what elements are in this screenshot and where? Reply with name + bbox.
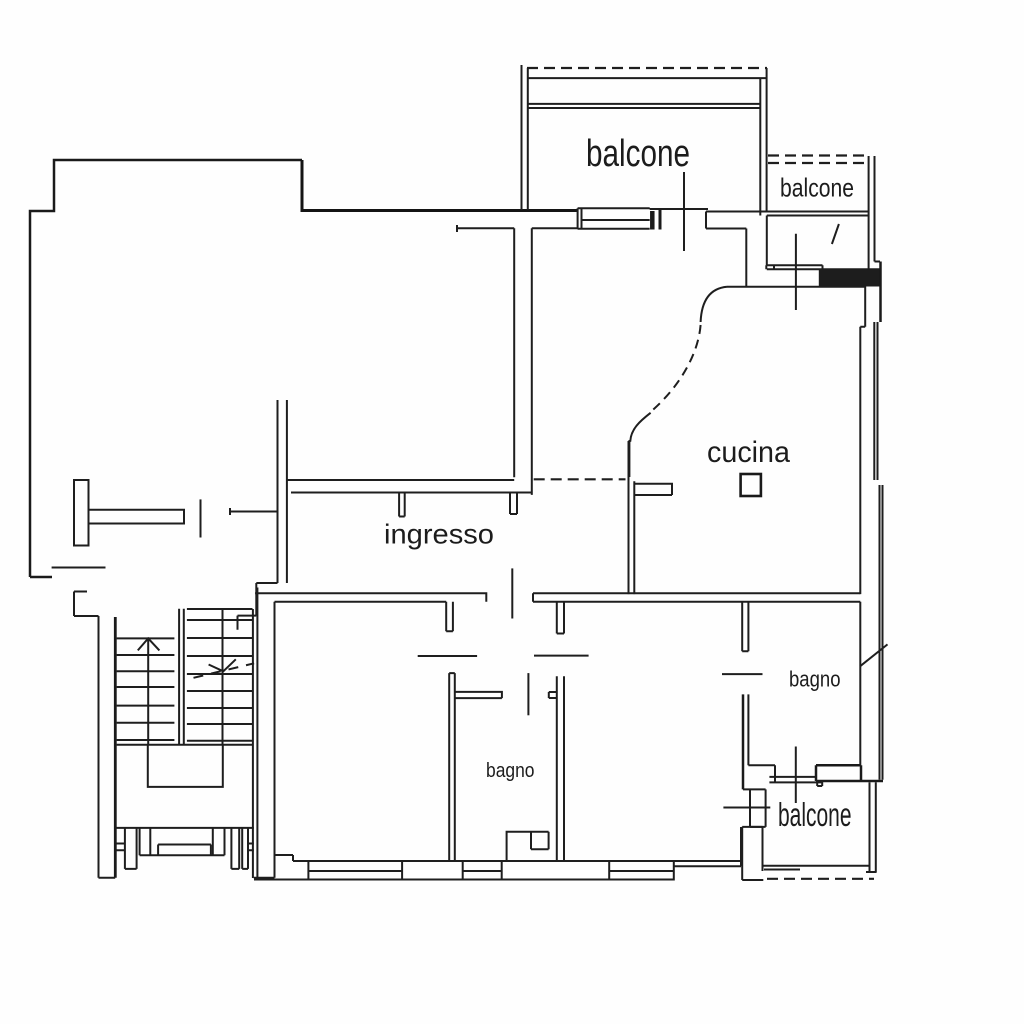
svg-text:balcone: balcone: [780, 173, 854, 203]
svg-text:balcone: balcone: [586, 133, 690, 175]
svg-text:bagno: bagno: [486, 760, 535, 782]
svg-text:bagno: bagno: [789, 667, 841, 692]
svg-text:balcone: balcone: [778, 796, 852, 833]
svg-text:ingresso: ingresso: [384, 519, 494, 550]
svg-text:cucina: cucina: [707, 436, 790, 469]
